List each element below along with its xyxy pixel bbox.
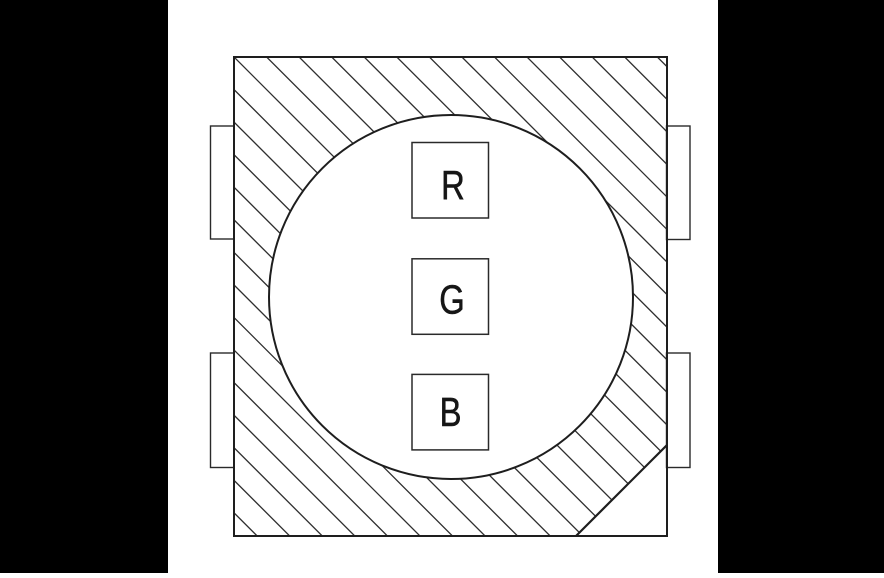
svg-text:R: R [441,161,465,207]
svg-text:G: G [439,276,465,322]
svg-text:B: B [440,388,462,434]
